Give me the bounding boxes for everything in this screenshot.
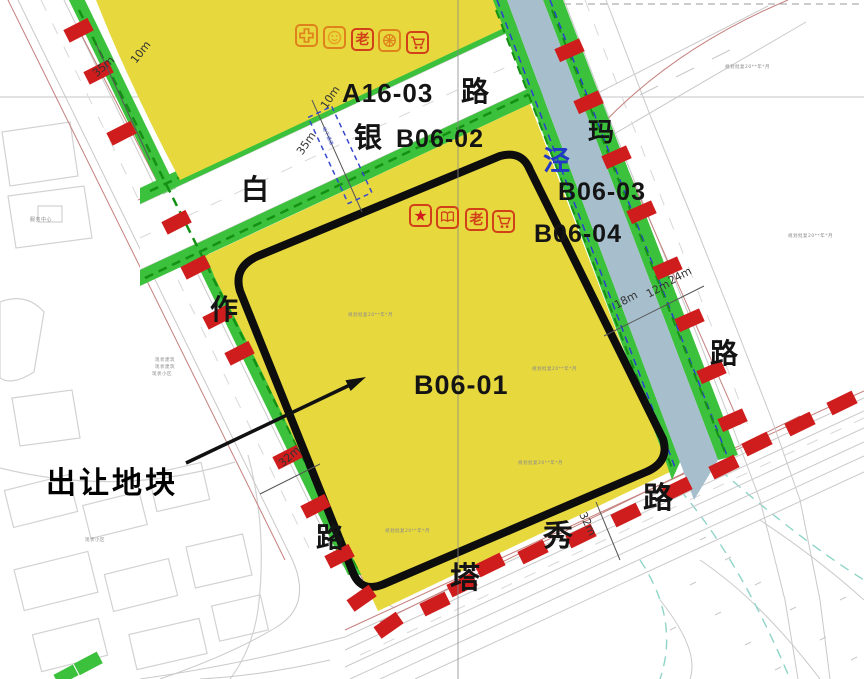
road-name-bottom-char-3: 路 (643, 484, 673, 514)
annotation-parcel-4: 规划批复20**年*月 (385, 528, 430, 534)
elder-glyph-2: 老 (470, 213, 484, 227)
road-name-top-char-3: 路 (461, 78, 489, 106)
river-name-label: 泾 (543, 148, 570, 175)
medical-cross-icon (295, 24, 318, 47)
star-icon: ★ (409, 204, 432, 227)
road-name-top-char-1: 白 (241, 176, 269, 204)
road-name-top-char-2: 银 (354, 124, 382, 152)
parcel-label-b06-04: B06-04 (534, 222, 622, 247)
annotation-bottomleft: 现状小区 (85, 537, 105, 543)
terrain-curves (640, 470, 864, 679)
parcel-label-b06-03: B06-03 (558, 180, 646, 205)
annotation-building-center: 服务中心 (30, 216, 52, 223)
shopping-cart-icon-top (406, 31, 429, 54)
road-name-bottom-char-1: 塔 (450, 564, 480, 594)
smiley-face-icon (323, 26, 346, 49)
road-name-right-char-2: 路 (710, 340, 738, 368)
shopping-cart-icon-parcel (492, 210, 515, 233)
annotation-parcel-3: 规划批复20**年*月 (518, 460, 563, 466)
annotation-left-3: 现状小区 (152, 371, 172, 377)
wheel-icon (378, 29, 401, 52)
road-name-left-char-1: 作 (210, 296, 238, 324)
elder-glyph: 老 (356, 33, 370, 47)
parcel-label-b06-02: B06-02 (396, 127, 484, 152)
elder-care-icon: 老 (351, 28, 374, 51)
annotation-right: 规划批复20**年*月 (788, 233, 833, 239)
planning-map: 出让地块 A16-03 B06-02 B06-01 B06-03 B06-04 … (0, 0, 864, 679)
book-icon (436, 206, 459, 229)
road-name-right-char-1: 玛 (588, 120, 614, 146)
parcel-label-b06-01: B06-01 (414, 372, 509, 399)
road-name-bottom-char-2: 秀 (543, 522, 573, 552)
elder-care-icon-2: 老 (465, 208, 488, 231)
star-glyph: ★ (413, 208, 427, 224)
annotation-left-2: 现状建筑 (155, 364, 175, 370)
annotation-left-1: 现状建筑 (155, 357, 175, 363)
road-name-left-char-2: 路 (316, 524, 344, 552)
annotation-parcel-2: 规划批复20**年*月 (532, 366, 577, 372)
parcel-label-a16-03: A16-03 (342, 80, 433, 106)
plot-callout-label: 出让地块 (46, 458, 178, 502)
annotation-parcel-1: 规划批复20**年*月 (348, 312, 393, 318)
annotation-topright: 规划批复20**年*月 (725, 64, 770, 70)
